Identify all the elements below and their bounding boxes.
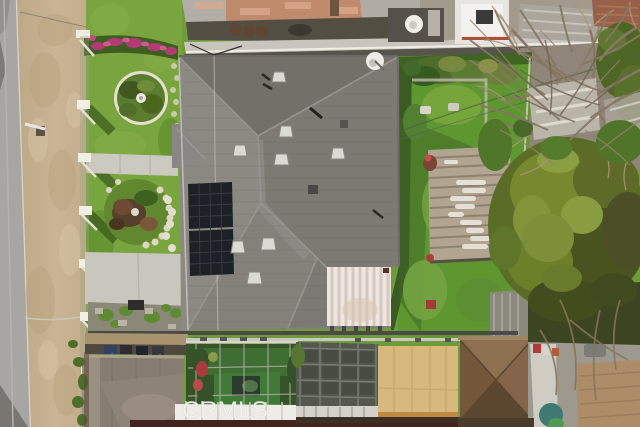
svg-text:CRMLS: CRMLS xyxy=(182,397,268,424)
